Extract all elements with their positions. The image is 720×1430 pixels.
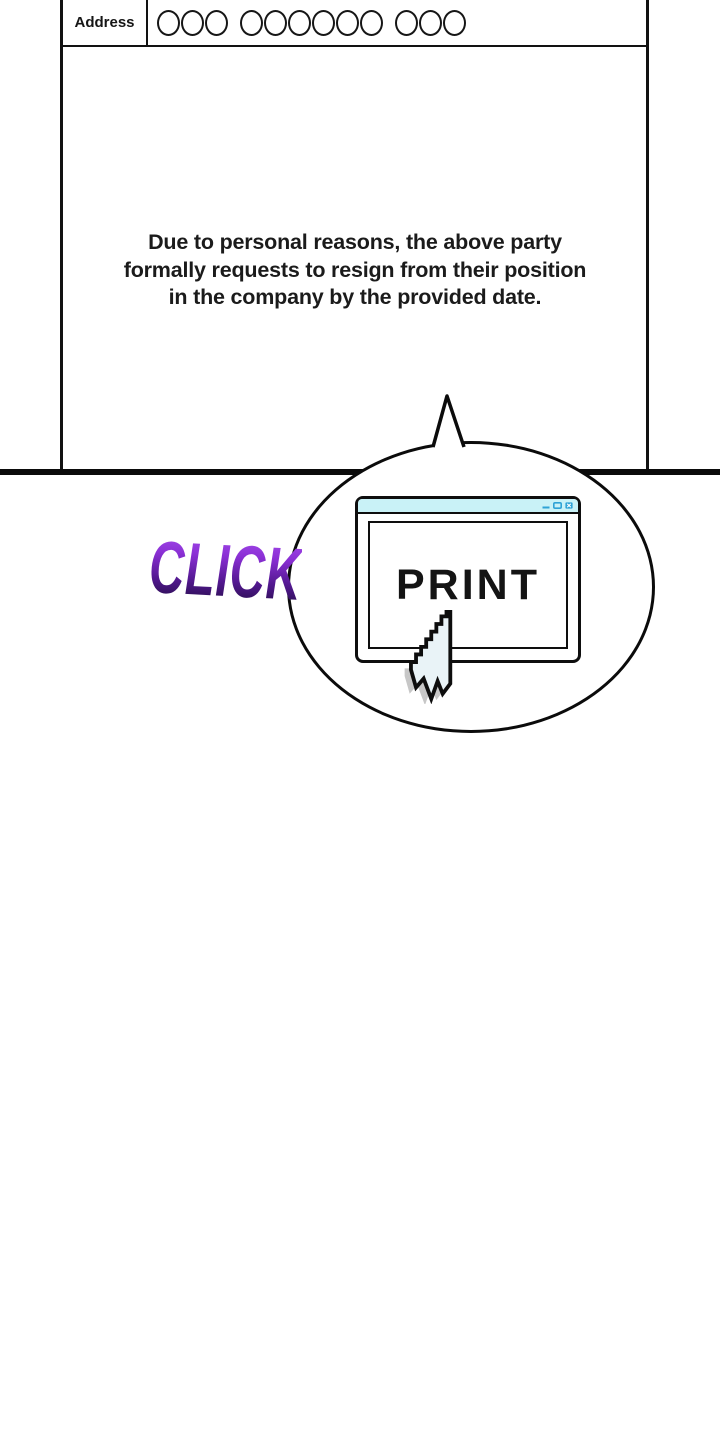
address-character-circle xyxy=(336,10,359,36)
address-character-circle xyxy=(240,10,263,36)
print-window-titlebar xyxy=(358,499,578,514)
address-circle-group xyxy=(240,10,384,36)
form-body-line: in the company by the provided date. xyxy=(62,284,648,312)
address-character-circle xyxy=(264,10,287,36)
form-body-text: Due to personal reasons, the above party… xyxy=(62,229,648,312)
address-character-circle xyxy=(443,10,466,36)
address-character-circle xyxy=(312,10,335,36)
address-character-circle xyxy=(419,10,442,36)
minimize-icon[interactable] xyxy=(542,502,550,509)
click-sfx-text: CLICK xyxy=(148,530,302,612)
pixel-cursor-icon xyxy=(397,610,463,704)
comic-page: Address Due to personal reasons, the abo… xyxy=(0,0,720,1430)
address-character-circle xyxy=(157,10,180,36)
address-circles xyxy=(157,0,478,45)
address-circle-group xyxy=(157,10,229,36)
maximize-icon[interactable] xyxy=(553,502,562,509)
print-dialog-window[interactable]: PRINT xyxy=(355,496,581,663)
speech-bubble-tail xyxy=(430,393,468,448)
address-character-circle xyxy=(395,10,418,36)
address-label-cell: Address xyxy=(63,0,146,45)
address-row-bottom-border xyxy=(60,45,649,47)
address-label: Address xyxy=(74,14,134,31)
address-character-circle xyxy=(360,10,383,36)
form-body-line: Due to personal reasons, the above party xyxy=(62,229,648,257)
close-icon[interactable] xyxy=(565,502,573,509)
form-body-line: formally requests to resign from their p… xyxy=(62,257,648,285)
address-cell-separator xyxy=(146,0,148,46)
address-circle-group xyxy=(395,10,467,36)
address-character-circle xyxy=(288,10,311,36)
address-character-circle xyxy=(181,10,204,36)
address-character-circle xyxy=(205,10,228,36)
print-button-label: PRINT xyxy=(396,561,540,610)
